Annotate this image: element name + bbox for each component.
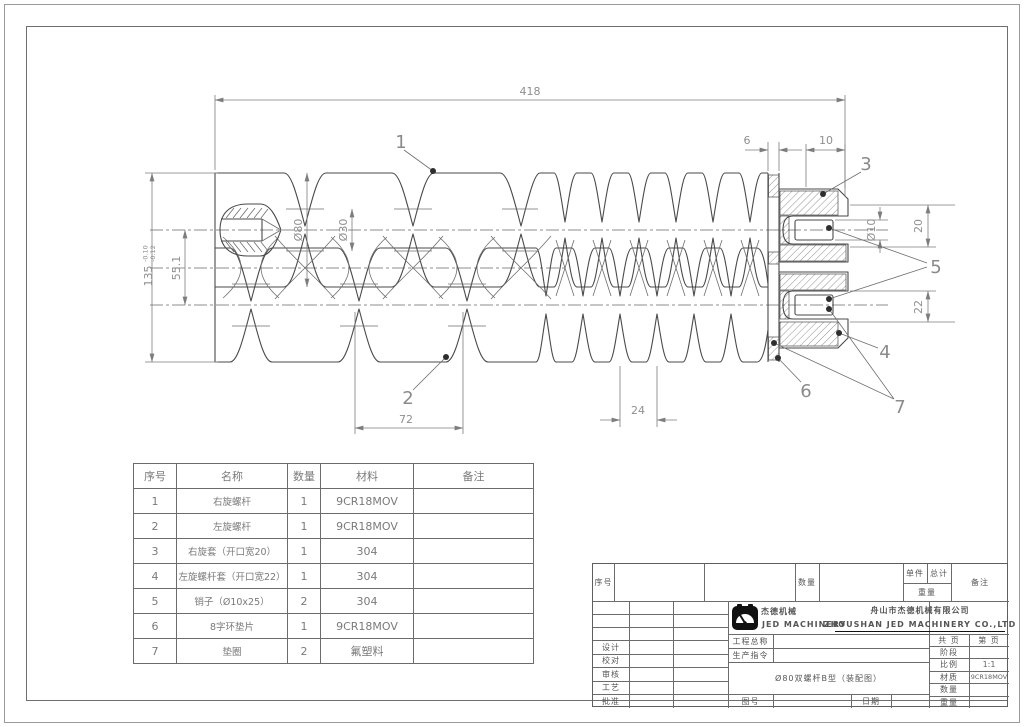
table-row: 4 左旋螺杆套（开口宽22） 1 304	[134, 564, 534, 589]
dim-pin-dia: Ø10	[865, 219, 878, 242]
table-row: 3 右旋套（开口宽20） 1 304	[134, 539, 534, 564]
table-row: 7 垫圈 2 氟塑料	[134, 639, 534, 664]
balloon-3: 3	[860, 154, 871, 175]
tb-seq-label: 序号	[593, 564, 614, 601]
tb-design-label: 设计	[593, 640, 629, 654]
dim-len10: 10	[819, 134, 833, 147]
dim-axis-distance: 55.1	[170, 256, 183, 281]
dim-slot20: 20	[912, 219, 925, 233]
table-row: 1 右旋螺杆 1 9CR18MOV	[134, 489, 534, 514]
tb-review-label: 审核	[593, 667, 629, 681]
tb-page-label: 第 页	[969, 634, 1009, 646]
dim-core-dia: Ø30	[337, 219, 350, 242]
tb-weight2-label: 重量	[929, 696, 969, 708]
tb-total-label: 总计	[927, 564, 951, 583]
svg-text:-0.12: -0.12	[149, 245, 157, 262]
tb-check-label: 校对	[593, 654, 629, 667]
tb-qty-label: 数量	[795, 564, 819, 601]
washer-plate-hatch-mid	[769, 252, 780, 264]
table-row: 2 左旋螺杆 1 9CR18MOV	[134, 514, 534, 539]
brand-name-cn: 杰德机械	[761, 603, 827, 619]
tb-project-label: 工程总称	[728, 634, 773, 648]
tb-weight-label: 重量	[903, 583, 951, 601]
tb-scale-label: 比例	[929, 658, 969, 671]
svg-text:135: 135	[142, 266, 155, 287]
dim-flight-dia: Ø80	[292, 219, 305, 242]
tb-unit-label: 单件	[903, 564, 927, 583]
table-row: 6 8字环垫片 1 9CR18MOV	[134, 614, 534, 639]
twin-screw-outline	[215, 173, 768, 362]
right-end-assembly	[768, 173, 848, 362]
balloon-4: 4	[879, 342, 890, 363]
helix-flank-curves	[223, 236, 759, 299]
col-material: 材料	[321, 464, 414, 489]
tb-remark-label: 备注	[951, 564, 1009, 601]
drawing-sheet: 418 135 -0.10 -0.12 55.1 Ø80 Ø30 72	[0, 0, 1024, 727]
drawing-title: Ø80双螺杆B型（装配图）	[728, 662, 929, 694]
parts-table: 序号 名称 数量 材料 备注 1 右旋螺杆 1 9CR18MOV 2 左旋螺杆 …	[133, 463, 534, 664]
tb-scale-value: 1:1	[969, 658, 1009, 671]
tb-stage-label: 阶段	[929, 646, 969, 658]
company-name-en: ZHOUSHAN JED MACHINERY CO.,LTD	[835, 619, 1005, 632]
col-remark: 备注	[414, 464, 534, 489]
balloon-5: 5	[930, 257, 941, 278]
jed-logo-icon	[732, 604, 758, 630]
col-no: 序号	[134, 464, 177, 489]
tb-qty2-label: 数量	[929, 683, 969, 696]
dim-slot22: 22	[912, 300, 925, 314]
tb-approve-label: 批准	[593, 694, 629, 708]
brand-name-en: JED MACHINERY	[762, 619, 828, 629]
tb-material-label: 材质	[929, 671, 969, 683]
tb-order-label: 生产指令	[728, 648, 773, 662]
col-name: 名称	[177, 464, 288, 489]
tb-pages-label: 共 页	[929, 634, 969, 646]
title-block: 序号 数量 单件 总计 重量 备注 设计 校对 审核 工艺 批准 杰德机械 JE…	[592, 563, 1008, 707]
tb-process-label: 工艺	[593, 681, 629, 694]
col-qty: 数量	[288, 464, 321, 489]
tb-drawing-no-label: 图号	[728, 694, 773, 708]
dim-fine-pitch: 24	[631, 404, 645, 417]
parts-table-header: 序号 名称 数量 材料 备注	[134, 464, 534, 489]
company-name-cn: 舟山市杰德机械有限公司	[833, 602, 1007, 618]
balloon-7: 7	[894, 397, 905, 418]
core-lines	[232, 209, 538, 326]
balloon-2: 2	[402, 388, 413, 409]
dim-total-length: 418	[520, 85, 541, 98]
tb-material-value: 9CR18MOV	[969, 671, 1009, 683]
dim-coarse-pitch: 72	[399, 413, 413, 426]
washer-plate-hatch-top	[769, 175, 780, 197]
dim-overall-height: 135 -0.10 -0.12	[142, 245, 158, 286]
table-row: 5 销子（Ø10x25） 2 304	[134, 589, 534, 614]
tb-date-label: 日期	[851, 694, 891, 708]
dim-gap6: 6	[744, 134, 751, 147]
balloon-1: 1	[395, 132, 406, 153]
balloon-callouts: 1 2 3 4 5 6 7	[395, 132, 941, 418]
balloon-6: 6	[800, 381, 811, 402]
